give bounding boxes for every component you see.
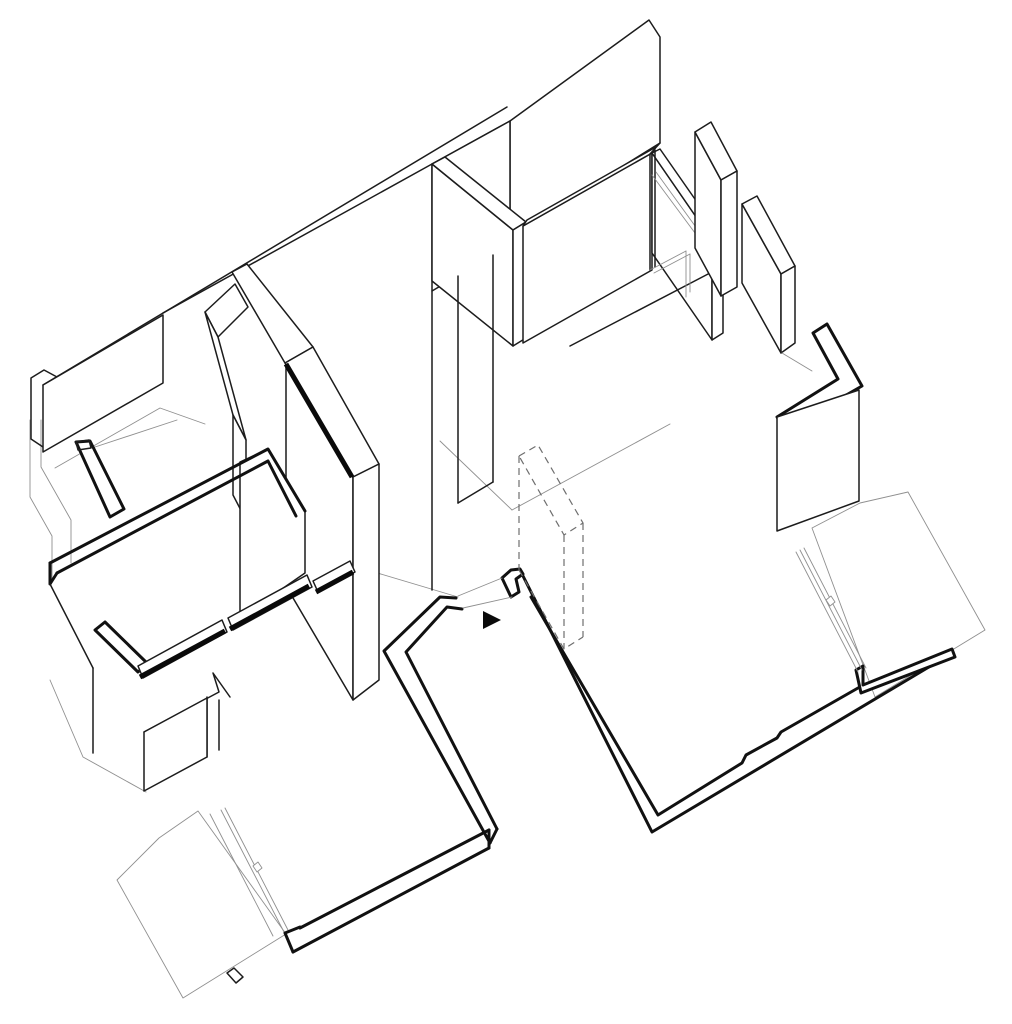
floor-slab-bottom-left [117, 811, 286, 998]
drawing-canvas [0, 0, 1012, 1024]
floor-slab-right [812, 492, 985, 697]
bedroom-wall-face [144, 698, 207, 791]
bedroom-bottom-wall-inner [300, 830, 489, 928]
partition-e-band [76, 441, 124, 517]
entry-threshold-2 [463, 597, 512, 608]
floor-line-hall-b [512, 424, 670, 510]
sill-line-to-right-wall [782, 353, 812, 371]
ghost-volume-top [519, 445, 583, 535]
floor-line-hall-a [440, 441, 512, 510]
left-wall-lower-edge [50, 584, 93, 668]
counter-strip-a-dark-edge [140, 631, 225, 677]
floor-line-room-topleft-2 [92, 420, 177, 448]
pier-c-end-cap [781, 266, 795, 353]
top-wall-base-edge [163, 164, 432, 313]
entry-threshold-1 [458, 578, 502, 596]
hall-door-base [458, 482, 493, 503]
entry-direction-triangle [483, 611, 501, 629]
interior-wall-end-face [353, 464, 379, 700]
sliding-track-bl-handle [253, 862, 262, 872]
pier-b-end-cap [721, 171, 737, 296]
ghost-volume-bottom [519, 570, 583, 649]
floor-line-left [50, 680, 146, 792]
interior-wall-band-upper [232, 264, 313, 363]
chevron-wall-end-cap [50, 563, 57, 584]
room-topleft-inner-face [43, 315, 163, 452]
entry-wall-end-cap [490, 829, 497, 843]
bedroom-bottom-wall-outer [293, 848, 489, 952]
entry-wall-outer [384, 597, 490, 843]
closet-slab-side [205, 312, 246, 440]
door-pivot-square [227, 968, 243, 983]
entry-stepped-pier [502, 569, 523, 597]
axonometric-floor-plan [0, 0, 1012, 1024]
terrace-wall-inner [531, 597, 858, 815]
